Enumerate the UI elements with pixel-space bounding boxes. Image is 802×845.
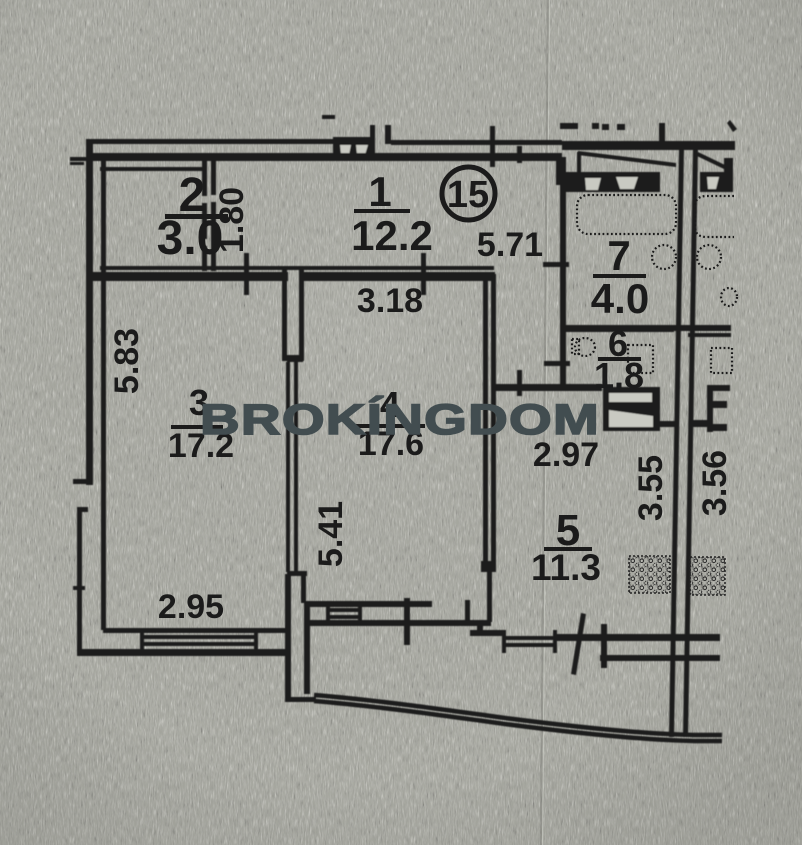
svg-text:12.2: 12.2 — [351, 212, 433, 259]
svg-text:15: 15 — [447, 174, 489, 216]
svg-text:7: 7 — [607, 232, 630, 279]
svg-text:1: 1 — [368, 168, 391, 215]
svg-text:3.56: 3.56 — [696, 450, 734, 516]
svg-text:4.0: 4.0 — [591, 275, 649, 322]
svg-text:3.55: 3.55 — [632, 455, 670, 521]
svg-text:5.41: 5.41 — [312, 501, 350, 567]
svg-text:2.95: 2.95 — [158, 588, 224, 626]
svg-text:1.8: 1.8 — [594, 355, 644, 396]
svg-text:3.18: 3.18 — [357, 282, 423, 320]
svg-text:1.80: 1.80 — [213, 187, 251, 253]
svg-text:5.71: 5.71 — [477, 226, 543, 264]
svg-text:11.3: 11.3 — [531, 547, 601, 588]
svg-text:5.83: 5.83 — [108, 328, 146, 394]
svg-text:BROKÍNGDOM: BROKÍNGDOM — [200, 396, 600, 444]
